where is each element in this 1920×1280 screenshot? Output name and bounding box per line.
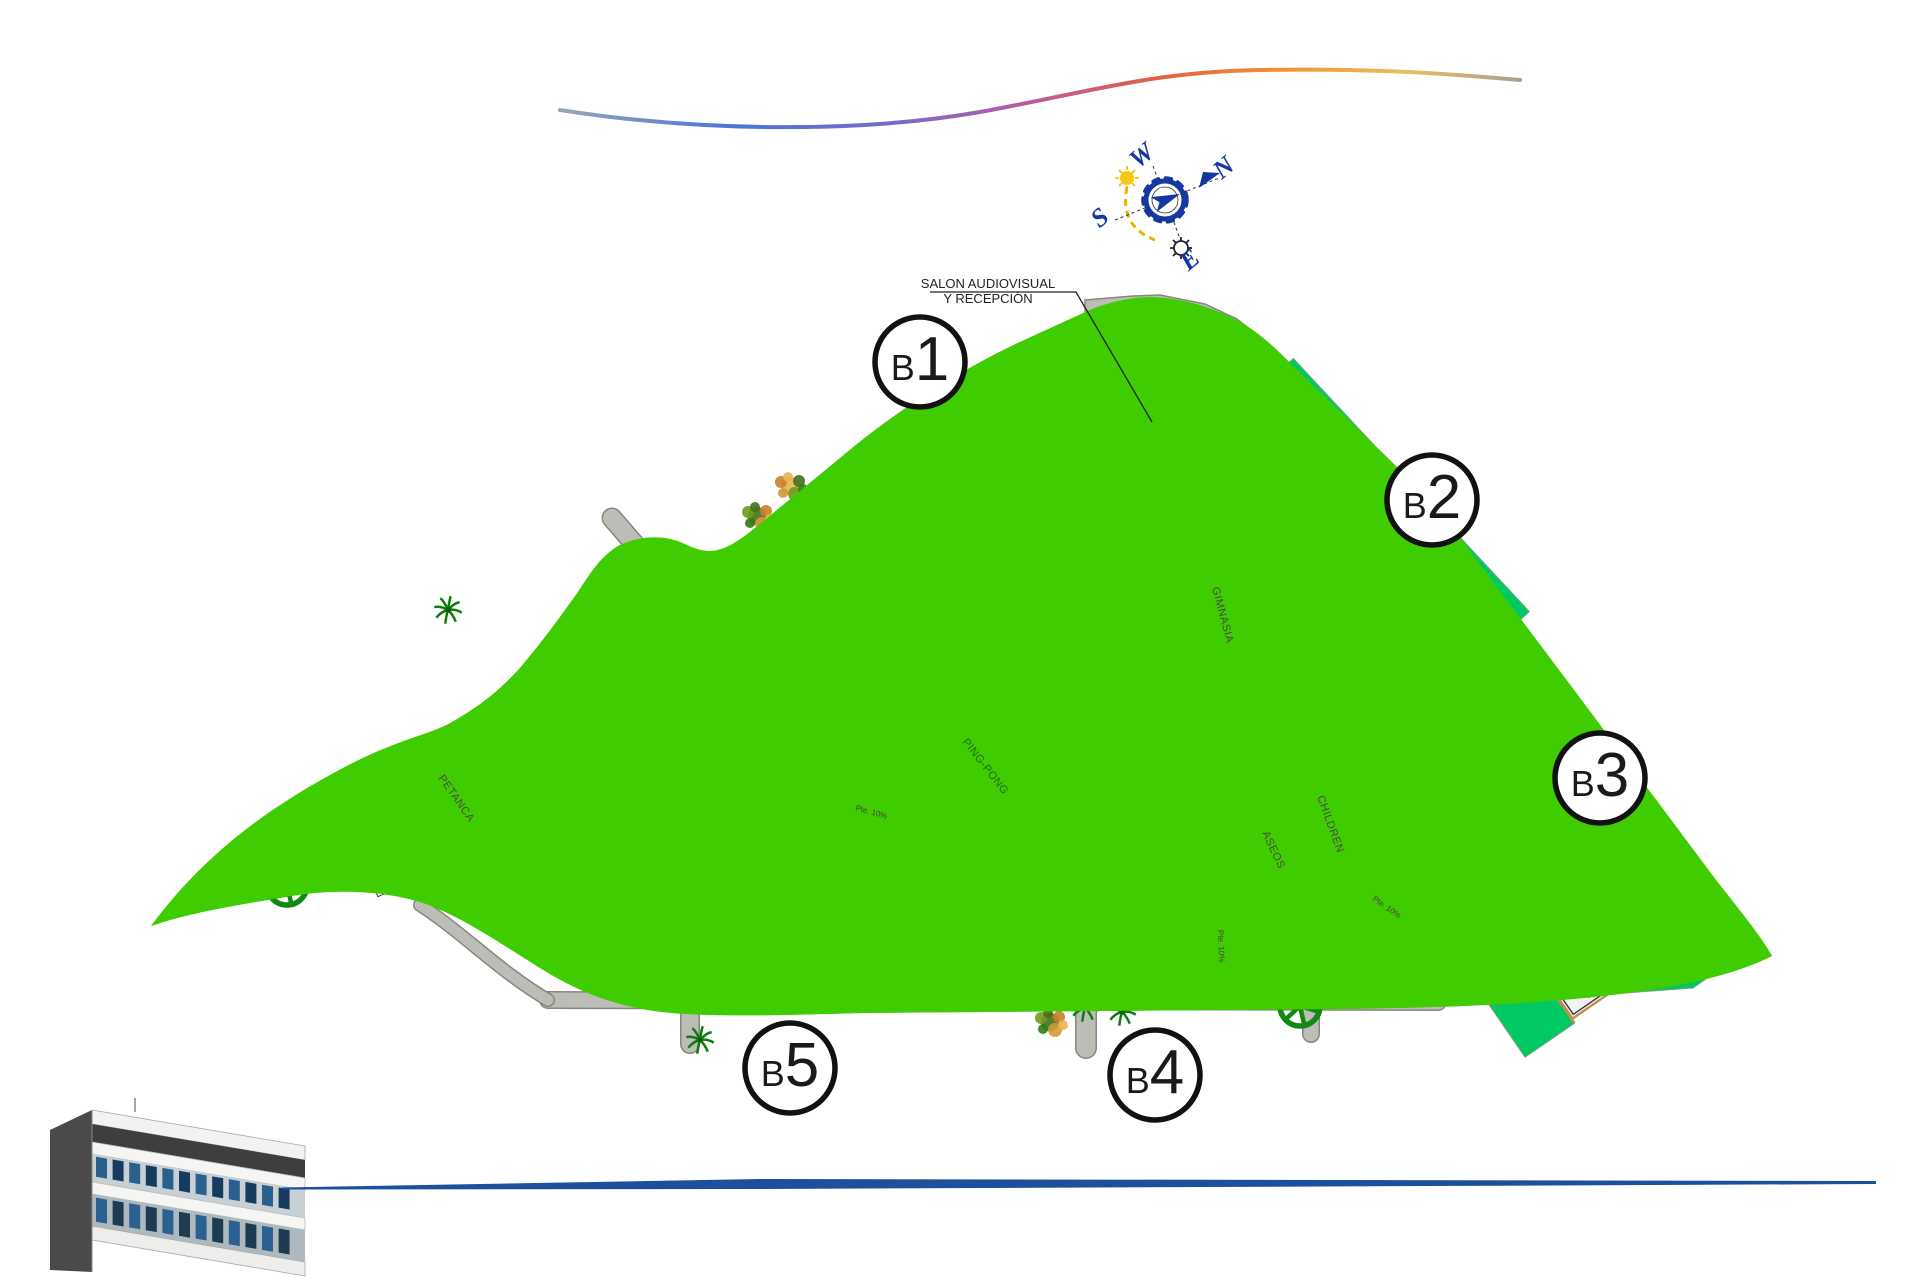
compass-s: S <box>1085 202 1115 234</box>
developer-logo <box>50 1098 305 1276</box>
badge-b4: B4 <box>1110 1030 1200 1120</box>
sun-icon <box>1120 171 1134 185</box>
palm-icon <box>434 596 461 623</box>
badge-b2: B2 <box>1387 455 1477 545</box>
badge-b1: B1 <box>875 317 965 407</box>
top-swoosh-decoration <box>560 70 1520 128</box>
slope-label: Pte. 10% <box>1216 930 1226 963</box>
bottom-divider-line <box>282 1179 1876 1190</box>
badge-b3: B3 <box>1555 733 1645 823</box>
salon-annotation-line1: SALON AUDIOVISUAL <box>921 276 1055 291</box>
compass-n: N <box>1206 150 1241 186</box>
bush-icon <box>1035 1008 1068 1037</box>
site-plan-page: 0102030405060708091011121314151617181920… <box>0 0 1920 1280</box>
compass-rose: W N S E <box>1085 136 1241 277</box>
compass-w: W <box>1123 136 1161 174</box>
salon-annotation-line2: Y RECEPCIÓN <box>943 291 1032 306</box>
site-plan-drawing: 0102030405060708091011121314151617181920… <box>0 0 1920 1280</box>
site-boundary-line <box>151 297 1772 1015</box>
site-area: 0102030405060708091011121314151617181920… <box>151 295 1772 1057</box>
badge-b5: B5 <box>745 1023 835 1113</box>
